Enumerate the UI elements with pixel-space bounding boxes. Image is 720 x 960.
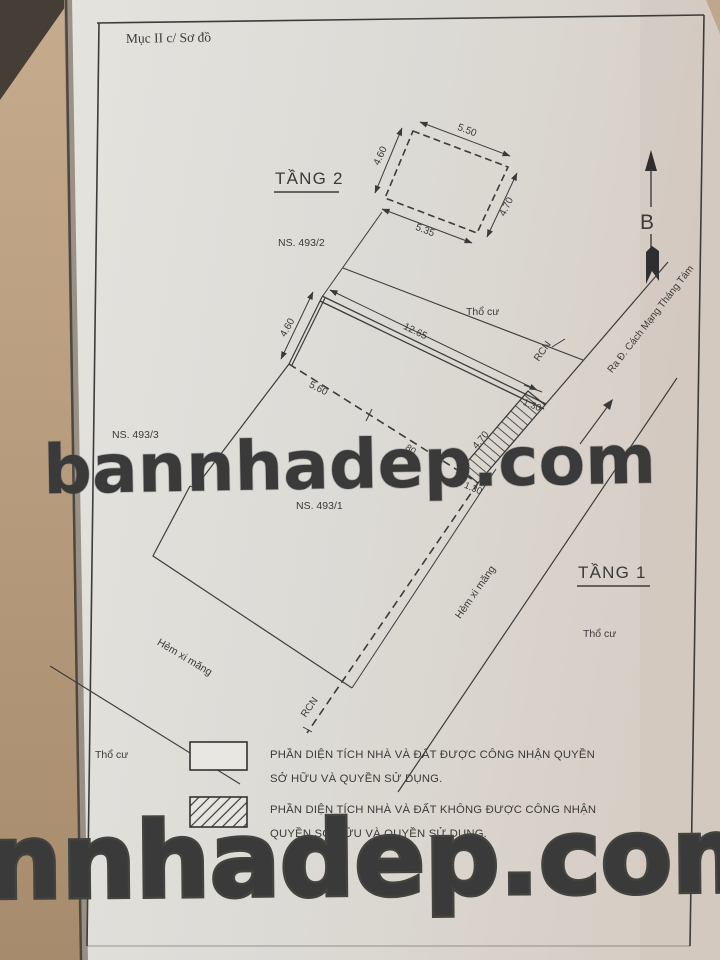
floor2-parcel-label: NS. 493/2 xyxy=(278,237,325,249)
tho-cu-bottom-label: Thổ cư xyxy=(95,749,128,761)
tho-cu-top-label: Thổ cư xyxy=(466,306,499,318)
site-plan-figure: Mục II c/ Sơ đồ B TẦNG 2 NS. 493/2 5.50 … xyxy=(0,0,720,960)
legend-recognized-line2: SỞ HỮU VÀ QUYỀN SỬ DỤNG. xyxy=(270,772,443,785)
legend-recognized-line1: PHẦN DIỆN TÍCH NHÀ VÀ ĐẤT ĐƯỢC CÔNG NHẬN… xyxy=(270,748,595,761)
floor2-title: TẦNG 2 xyxy=(275,169,344,188)
legend-swatch-recognized xyxy=(190,742,247,770)
section-title: Mục II c/ Sơ đồ xyxy=(126,30,212,46)
north-label: B xyxy=(640,211,654,234)
photographed-document: Mục II c/ Sơ đồ B TẦNG 2 NS. 493/2 5.50 … xyxy=(0,0,720,960)
watermark-bottom: nnhadep.com xyxy=(0,794,720,923)
watermark-middle: bannhadep.com xyxy=(43,421,657,511)
tho-cu-right-label: Thổ cư xyxy=(583,628,616,640)
floor1-title: TẦNG 1 xyxy=(578,563,647,582)
